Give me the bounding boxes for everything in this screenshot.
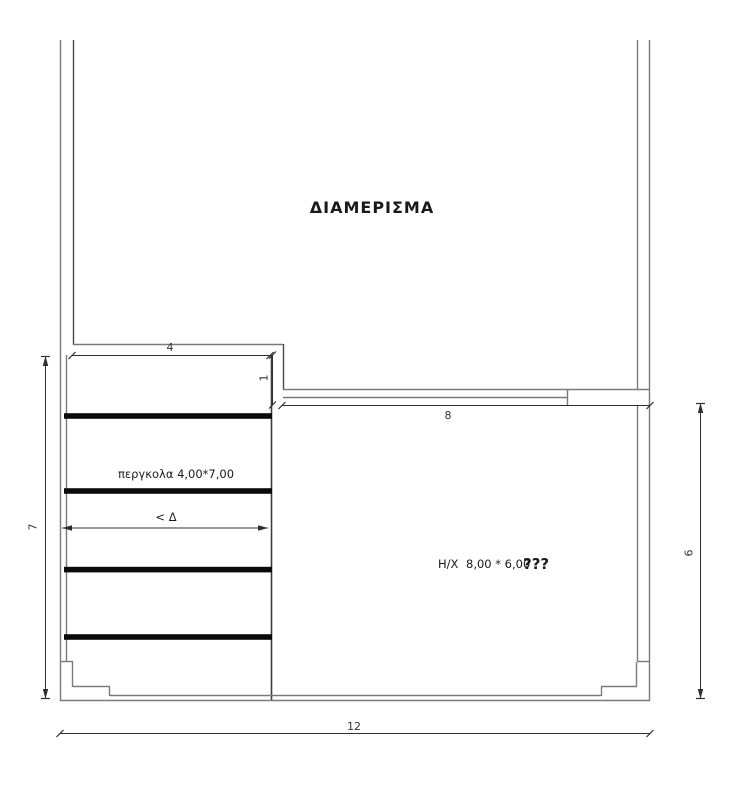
hx-unknown-label: ??? xyxy=(523,555,549,573)
dim-label-pergola-depth: 7 xyxy=(27,524,40,531)
dim-label-hx-width: 8 xyxy=(445,409,452,422)
pergola-beam xyxy=(64,488,272,494)
apartment-label: ΔΙΑΜΕΡΙΣΜΑ xyxy=(310,198,434,217)
pergola-beam xyxy=(64,634,272,640)
dim-label-pergola-width: 4 xyxy=(167,341,174,354)
hx-size-label: 8,00 * 6,00 xyxy=(466,557,530,571)
pergola-direction-label: < Δ xyxy=(155,510,176,524)
hx-label: Η/Χ xyxy=(438,557,459,571)
dim-label-hx-depth: 6 xyxy=(683,550,696,557)
pergola-beam xyxy=(64,567,272,573)
floor-plan-page: ΔΙΑΜΕΡΙΣΜΑ περγκολα 4,00*7,00 < Δ Η/Χ 8,… xyxy=(0,0,734,800)
pergola-beam xyxy=(64,413,272,419)
pergola-label: περγκολα 4,00*7,00 xyxy=(118,467,234,481)
dim-label-level-offset: 1 xyxy=(258,375,271,382)
floor-plan-drawing: ΔΙΑΜΕΡΙΣΜΑ περγκολα 4,00*7,00 < Δ Η/Χ 8,… xyxy=(0,0,734,800)
canvas-background xyxy=(0,0,734,800)
dim-label-total-width: 12 xyxy=(347,720,361,733)
